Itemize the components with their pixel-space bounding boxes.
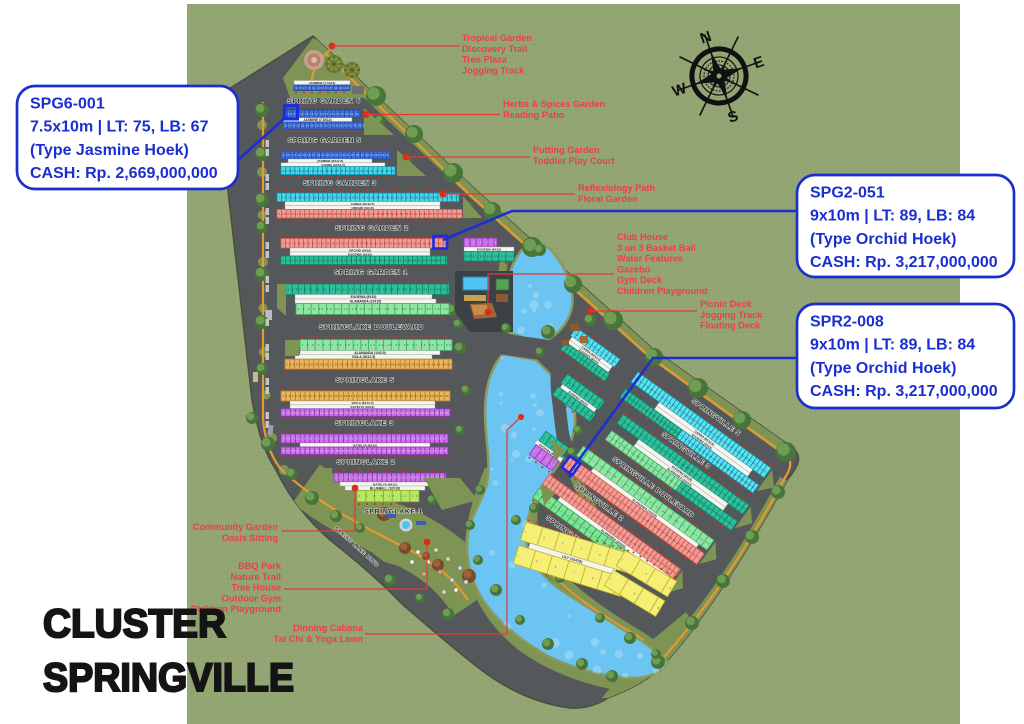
svg-text:SPRINGVILLE: SPRINGVILLE [43, 656, 294, 700]
svg-text:Water Features: Water Features [617, 254, 683, 264]
svg-text:1 3 5 7 9 11 13 15 17 19 21 23: 1 3 5 7 9 11 13 15 17 19 21 23 25 27 29 … [302, 343, 452, 347]
svg-text:9x10m | LT: 89, LB: 84: 9x10m | LT: 89, LB: 84 [810, 337, 975, 354]
svg-text:SPRINGLAKE 5: SPRINGLAKE 5 [336, 377, 395, 384]
svg-text:Gazebo: Gazebo [617, 264, 651, 274]
svg-text:Picnic Deck: Picnic Deck [700, 299, 752, 309]
svg-text:(Type Jasmine Hoek): (Type Jasmine Hoek) [30, 142, 189, 159]
svg-text:Community Garden: Community Garden [193, 522, 279, 532]
svg-text:2 4 6 8 10 12 14: 2 4 6 8 10 12 14 [359, 494, 419, 498]
svg-text:Outdoor Gym: Outdoor Gym [222, 593, 281, 603]
svg-text:Nature Trail: Nature Trail [230, 572, 281, 582]
svg-text:1 3 5 7 9: 1 3 5 7 9 [466, 241, 497, 245]
svg-text:SPRINGLAKE 2: SPRINGLAKE 2 [337, 459, 396, 466]
svg-text:Jogging Track: Jogging Track [700, 310, 763, 320]
svg-text:2 4 6 8 10 12 14 16 18 20 22 2: 2 4 6 8 10 12 14 16 18 20 22 24 26 28 30… [283, 411, 450, 415]
svg-text:1 3 5 7 9 11 13 15 17 19 21 23: 1 3 5 7 9 11 13 15 17 19 21 23 [296, 86, 350, 90]
svg-text:Reflexiology Path: Reflexiology Path [578, 183, 655, 193]
svg-text:9x10m | LT: 89, LB: 84: 9x10m | LT: 89, LB: 84 [810, 208, 975, 225]
svg-text:SPRING GARDEN 5: SPRING GARDEN 5 [288, 138, 362, 145]
svg-text:ALAMANDA (10X15): ALAMANDA (10X15) [350, 300, 382, 304]
svg-text:2 4 6 8 10 12 14 16 18 20 22 2: 2 4 6 8 10 12 14 16 18 20 22 24 26 28 30… [279, 212, 462, 216]
svg-text:Floating Deck: Floating Deck [700, 321, 761, 331]
svg-text:EUGENIA (8X15): EUGENIA (8X15) [351, 295, 377, 299]
svg-text:Floral Garden: Floral Garden [578, 194, 638, 204]
svg-text:2 4 6 8 10 12 14 16 18 20 22 2: 2 4 6 8 10 12 14 16 18 20 22 24 26 28 30… [283, 449, 448, 453]
svg-text:1 3 5 7 9 11 13 15 17 19 21 23: 1 3 5 7 9 11 13 15 17 19 21 23 25 27 29 … [288, 287, 449, 291]
svg-text:1 3 5 7 9 11 13 15 17 19 21 23: 1 3 5 7 9 11 13 15 17 19 21 23 25 27 29 … [283, 153, 390, 157]
svg-text:3 on 3 Basket Ball: 3 on 3 Basket Ball [617, 243, 696, 253]
svg-text:Jogging Track: Jogging Track [462, 65, 525, 75]
svg-text:1 3 5 7 9 11 13 15 17 19 21 23: 1 3 5 7 9 11 13 15 17 19 21 23 25 27 29 … [283, 241, 447, 245]
svg-text:SPG6-001: SPG6-001 [30, 96, 105, 113]
svg-text:Herbs & Spices Garden: Herbs & Spices Garden [503, 99, 606, 109]
svg-text:Tai Chi & Yoga Lawn: Tai Chi & Yoga Lawn [274, 634, 364, 644]
svg-text:Discovery Trail: Discovery Trail [462, 44, 527, 54]
svg-text:JASMINE (7.5X12): JASMINE (7.5X12) [309, 81, 335, 85]
svg-text:SPRING GARDEN 6: SPRING GARDEN 6 [287, 98, 361, 105]
svg-text:1 3 5 7 9 11 13 15 17 19 21 23: 1 3 5 7 9 11 13 15 17 19 21 23 25 27 29 … [285, 112, 360, 116]
svg-text:Reading Patio: Reading Patio [503, 110, 565, 120]
svg-text:Tree House: Tree House [231, 583, 281, 593]
svg-text:Oasis Sitting: Oasis Sitting [222, 533, 278, 543]
svg-text:SPRING GARDEN 3: SPRING GARDEN 3 [303, 180, 377, 187]
svg-text:2 4 6 8 10 12 14 16 18 20 22 2: 2 4 6 8 10 12 14 16 18 20 22 24 26 28 30… [287, 362, 452, 366]
svg-text:Tropical Garden: Tropical Garden [462, 33, 532, 43]
svg-text:EUGENIA (8X15): EUGENIA (8X15) [477, 248, 501, 252]
svg-text:Dinning Cabana: Dinning Cabana [293, 623, 364, 633]
svg-text:(Type Orchid Hoek): (Type Orchid Hoek) [810, 231, 956, 248]
svg-text:CASH: Rp. 3,217,000,000: CASH: Rp. 3,217,000,000 [810, 383, 998, 400]
svg-text:2 4 6 8 10 12 14 16 18 20 22 2: 2 4 6 8 10 12 14 16 18 20 22 24 26 28 30… [285, 124, 372, 128]
svg-text:SPG2-051: SPG2-051 [810, 185, 885, 202]
svg-text:2 4 6 8 10 12 14 16 18 20 22 2: 2 4 6 8 10 12 14 16 18 20 22 24 26 28 30… [283, 169, 395, 173]
svg-text:Gym Deck: Gym Deck [617, 275, 663, 285]
svg-text:SPRING GARDEN 1: SPRING GARDEN 1 [334, 270, 408, 277]
svg-text:Children Playground: Children Playground [617, 286, 707, 296]
svg-text:CLUSTER: CLUSTER [43, 602, 226, 646]
svg-text:BLUEBELL (10X18): BLUEBELL (10X18) [370, 486, 400, 490]
svg-text:Club House: Club House [617, 232, 668, 242]
svg-text:BBQ Park: BBQ Park [238, 561, 282, 571]
svg-text:50 52 54 56 58 60 62: 50 52 54 56 58 60 62 [466, 254, 514, 258]
svg-text:VIOLA (8X12.5): VIOLA (8X12.5) [352, 355, 376, 359]
svg-text:Tree Plaza: Tree Plaza [462, 55, 508, 65]
svg-text:1 3 5 7 9 11 13 15 17 19 21 23: 1 3 5 7 9 11 13 15 17 19 21 23 25 27 29 … [283, 394, 450, 398]
svg-text:(Type Orchid Hoek): (Type Orchid Hoek) [810, 360, 956, 377]
svg-text:1 3 5 7 9 11 13 15 17 19 21 23: 1 3 5 7 9 11 13 15 17 19 21 23 25 27 29 … [279, 196, 459, 200]
svg-text:SPRINGLAKE BOULEVARD: SPRINGLAKE BOULEVARD [319, 324, 424, 331]
svg-text:SPR2-008: SPR2-008 [810, 314, 884, 331]
svg-text:Putting Garden: Putting Garden [533, 145, 600, 155]
svg-text:Toddler Play Court: Toddler Play Court [533, 156, 615, 166]
svg-text:CASH: Rp. 2,669,000,000: CASH: Rp. 2,669,000,000 [30, 165, 218, 182]
svg-text:SPRING GARDEN 2: SPRING GARDEN 2 [335, 225, 409, 232]
svg-text:SPRINGLAKE 3: SPRINGLAKE 3 [335, 420, 394, 427]
svg-text:2 4 6 8 10 12 14 16 18 20 22 2: 2 4 6 8 10 12 14 16 18 20 22 24 26 28 30… [283, 258, 447, 262]
svg-text:CASH: Rp. 3,217,000,000: CASH: Rp. 3,217,000,000 [810, 254, 998, 271]
svg-text:1 3 5 7 9 11 13 15 17 19 21 23: 1 3 5 7 9 11 13 15 17 19 21 23 25 27 29 … [283, 437, 448, 441]
svg-text:7.5x10m | LT: 75, LB: 67: 7.5x10m | LT: 75, LB: 67 [30, 119, 209, 136]
